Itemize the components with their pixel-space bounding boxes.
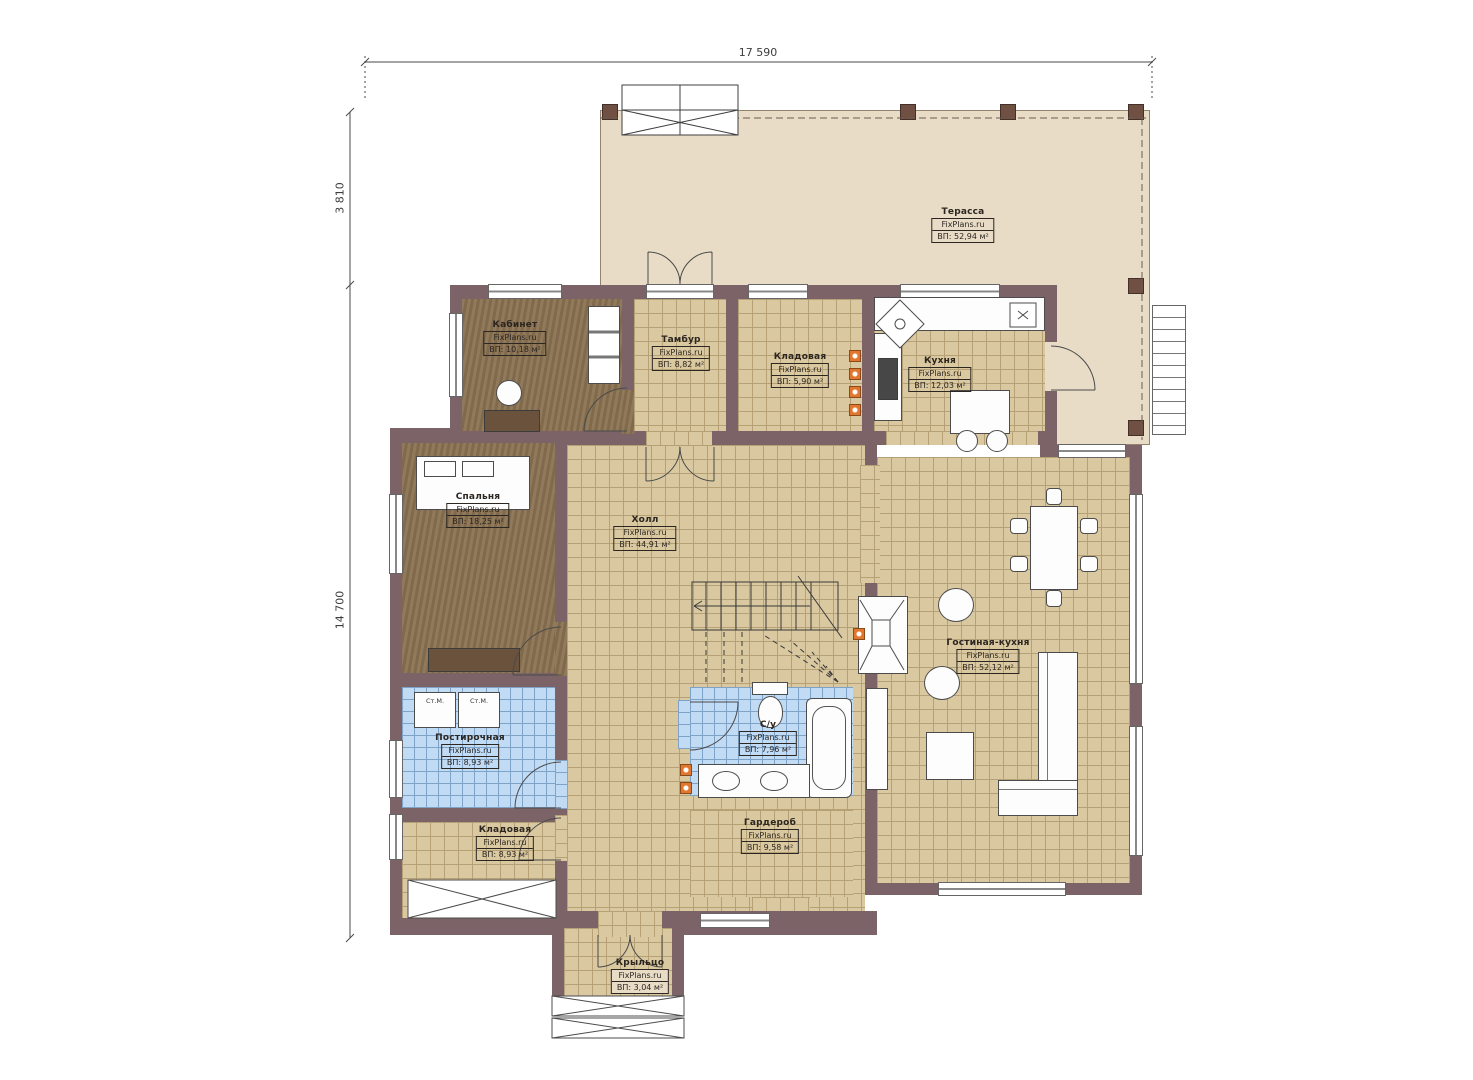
room-name: Терасса xyxy=(931,207,994,217)
room-brand: FixPlans.ru xyxy=(442,745,498,756)
room-name: Тамбур xyxy=(652,335,710,345)
room-label-laundry: Постирочная FixPlans.ru ВП: 8,93 м² xyxy=(435,733,505,769)
door-opening xyxy=(1045,342,1057,391)
room-brand: FixPlans.ru xyxy=(653,347,709,358)
wall-segment xyxy=(390,808,567,822)
room-label-office: Кабинет FixPlans.ru ВП: 10,18 м² xyxy=(483,320,546,356)
room-area: ВП: 5,90 м² xyxy=(772,375,828,387)
room-info-box: FixPlans.ru ВП: 9,58 м² xyxy=(741,829,799,854)
room-brand: FixPlans.ru xyxy=(612,970,668,981)
room-area: ВП: 7,96 м² xyxy=(740,743,796,755)
radiator-marker xyxy=(849,404,861,416)
room-info-box: FixPlans.ru ВП: 18,25 м² xyxy=(446,503,509,528)
window xyxy=(700,913,770,928)
dining-chair xyxy=(1046,590,1062,607)
window xyxy=(488,284,562,299)
wall-segment xyxy=(726,297,738,437)
armchair xyxy=(938,588,974,622)
dining-chair xyxy=(1080,556,1098,572)
entrance-door xyxy=(646,284,714,299)
terrace-post xyxy=(1128,278,1144,294)
wall-segment xyxy=(672,928,684,998)
room-info-box: FixPlans.ru ВП: 8,82 м² xyxy=(652,346,710,371)
room-area: ВП: 3,04 м² xyxy=(612,981,668,993)
door-opening xyxy=(555,622,567,676)
room-label-hall: Холл FixPlans.ru ВП: 44,91 м² xyxy=(613,515,676,551)
room-label-bathroom: С/у FixPlans.ru ВП: 7,96 м² xyxy=(739,720,797,756)
fireplace xyxy=(858,596,908,674)
room-name: Кладовая xyxy=(771,352,829,362)
radiator-marker xyxy=(853,628,865,640)
room-area: ВП: 44,91 м² xyxy=(614,538,675,550)
room-brand: FixPlans.ru xyxy=(957,650,1018,661)
tv-cabinet xyxy=(866,688,888,790)
dining-chair xyxy=(1010,518,1028,534)
radiator-marker xyxy=(849,368,861,380)
terrace-post xyxy=(1000,104,1016,120)
room-label-pantry-top: Кладовая FixPlans.ru ВП: 5,90 м² xyxy=(771,352,829,388)
room-name: Кабинет xyxy=(483,320,546,330)
door-opening xyxy=(598,911,662,937)
porch-steps xyxy=(552,996,684,1038)
door-opening xyxy=(555,760,567,809)
wall-segment xyxy=(390,918,567,935)
window xyxy=(1058,444,1126,458)
kitchen-chair xyxy=(956,430,978,452)
window xyxy=(449,313,463,397)
toilet-tank xyxy=(752,682,788,695)
window xyxy=(938,882,1066,896)
room-name: С/у xyxy=(739,720,797,730)
room-name: Холл xyxy=(613,515,676,525)
window xyxy=(389,740,403,798)
dining-chair xyxy=(1010,556,1028,572)
room-label-wardrobe: Гардероб FixPlans.ru ВП: 9,58 м² xyxy=(741,818,799,854)
dining-chair xyxy=(1080,518,1098,534)
door-opening xyxy=(678,700,690,749)
room-info-box: FixPlans.ru ВП: 52,12 м² xyxy=(956,649,1019,674)
door-opening xyxy=(555,815,567,861)
radiator-marker xyxy=(849,350,861,362)
terrace-post xyxy=(602,104,618,120)
dimension-left-lower: 14 700 xyxy=(334,591,347,630)
floor-plan: 17 590 3 810 14 700 xyxy=(0,0,1473,1080)
room-area: ВП: 52,12 м² xyxy=(957,661,1018,673)
room-brand: FixPlans.ru xyxy=(614,527,675,538)
room-brand: FixPlans.ru xyxy=(484,332,545,343)
room-name: Гардероб xyxy=(741,818,799,828)
door-opening xyxy=(752,897,810,911)
bathtub xyxy=(806,698,852,798)
sink xyxy=(712,771,740,791)
room-name: Кладовая xyxy=(476,825,534,835)
room-info-box: FixPlans.ru ВП: 3,04 м² xyxy=(611,969,669,994)
room-brand: FixPlans.ru xyxy=(932,219,993,230)
window xyxy=(1129,726,1143,856)
room-area: ВП: 8,93 м² xyxy=(442,756,498,768)
room-info-box: FixPlans.ru ВП: 52,94 м² xyxy=(931,218,994,243)
terrace-side-steps xyxy=(1152,305,1186,435)
room-label-porch: Крыльцо FixPlans.ru ВП: 3,04 м² xyxy=(611,958,669,994)
room-area: ВП: 18,25 м² xyxy=(447,515,508,527)
room-info-box: FixPlans.ru ВП: 12,03 м² xyxy=(908,367,971,392)
bathtub-basin xyxy=(812,706,846,790)
room-area: ВП: 12,03 м² xyxy=(909,379,970,391)
washer-label: Ст.М. xyxy=(459,693,499,705)
room-brand: FixPlans.ru xyxy=(772,364,828,375)
room-brand: FixPlans.ru xyxy=(447,504,508,515)
washing-machine: Ст.М. xyxy=(414,692,456,728)
terrace-post xyxy=(900,104,916,120)
kitchen-counter xyxy=(874,297,1045,331)
sink xyxy=(760,771,788,791)
terrace-post xyxy=(1128,420,1144,436)
room-label-terrace: Терасса FixPlans.ru ВП: 52,94 м² xyxy=(931,207,994,243)
pillow xyxy=(462,461,494,477)
wall-segment xyxy=(552,928,564,998)
room-area: ВП: 8,82 м² xyxy=(653,358,709,370)
room-area: ВП: 9,58 м² xyxy=(742,841,798,853)
window xyxy=(748,284,808,299)
room-brand: FixPlans.ru xyxy=(740,732,796,743)
window xyxy=(389,494,403,574)
open-plan-gap xyxy=(860,465,880,583)
bedroom-dresser xyxy=(428,648,520,672)
wall-segment xyxy=(390,673,567,687)
dimension-left-upper: 3 810 xyxy=(334,182,347,214)
radiator-marker xyxy=(680,782,692,794)
door-opening xyxy=(646,431,712,445)
coffee-table xyxy=(926,732,974,780)
room-name: Гостиная-кухня xyxy=(946,638,1029,648)
wall-segment xyxy=(862,297,874,437)
window xyxy=(1129,494,1143,684)
room-info-box: FixPlans.ru ВП: 5,90 м² xyxy=(771,363,829,388)
room-label-living: Гостиная-кухня FixPlans.ru ВП: 52,12 м² xyxy=(946,638,1029,674)
door-opening xyxy=(622,390,634,434)
washer-label: Ст.М. xyxy=(415,693,455,705)
room-name: Постирочная xyxy=(435,733,505,743)
room-label-bedroom: Спальня FixPlans.ru ВП: 18,25 м² xyxy=(446,492,509,528)
radiator-marker xyxy=(680,764,692,776)
terrace-post xyxy=(1128,104,1144,120)
room-area: ВП: 8,93 м² xyxy=(477,848,533,860)
room-name: Крыльцо xyxy=(611,958,669,968)
terrace-deck xyxy=(600,110,1150,286)
room-name: Кухня xyxy=(908,356,971,366)
room-name: Спальня xyxy=(446,492,509,502)
room-info-box: FixPlans.ru ВП: 7,96 м² xyxy=(739,731,797,756)
room-brand: FixPlans.ru xyxy=(742,830,798,841)
room-info-box: FixPlans.ru ВП: 10,18 м² xyxy=(483,331,546,356)
dimension-top-width: 17 590 xyxy=(739,46,778,59)
terrace-post xyxy=(722,104,738,120)
room-info-box: FixPlans.ru ВП: 8,93 м² xyxy=(441,744,499,769)
kitchen-chair xyxy=(986,430,1008,452)
dining-chair xyxy=(1046,488,1062,505)
room-info-box: FixPlans.ru ВП: 8,93 м² xyxy=(476,836,534,861)
room-label-kitchen: Кухня FixPlans.ru ВП: 12,03 м² xyxy=(908,356,971,392)
window xyxy=(389,814,403,860)
dining-table xyxy=(1030,506,1078,590)
room-info-box: FixPlans.ru ВП: 44,91 м² xyxy=(613,526,676,551)
room-brand: FixPlans.ru xyxy=(477,837,533,848)
kitchen-oven xyxy=(878,358,898,400)
radiator-marker xyxy=(849,386,861,398)
sofa-back-line xyxy=(999,789,1077,790)
room-area: ВП: 10,18 м² xyxy=(484,343,545,355)
room-label-tambour: Тамбур FixPlans.ru ВП: 8,82 м² xyxy=(652,335,710,371)
sofa-section xyxy=(998,780,1078,816)
kitchen-table xyxy=(950,390,1010,434)
room-label-pantry-bottom: Кладовая FixPlans.ru ВП: 8,93 м² xyxy=(476,825,534,861)
room-area: ВП: 52,94 м² xyxy=(932,230,993,242)
room-brand: FixPlans.ru xyxy=(909,368,970,379)
pillow xyxy=(424,461,456,477)
office-chair xyxy=(496,380,522,406)
office-desk xyxy=(484,410,540,432)
office-cabinet xyxy=(588,306,620,384)
washing-machine: Ст.М. xyxy=(458,692,500,728)
wall-segment xyxy=(555,443,567,935)
